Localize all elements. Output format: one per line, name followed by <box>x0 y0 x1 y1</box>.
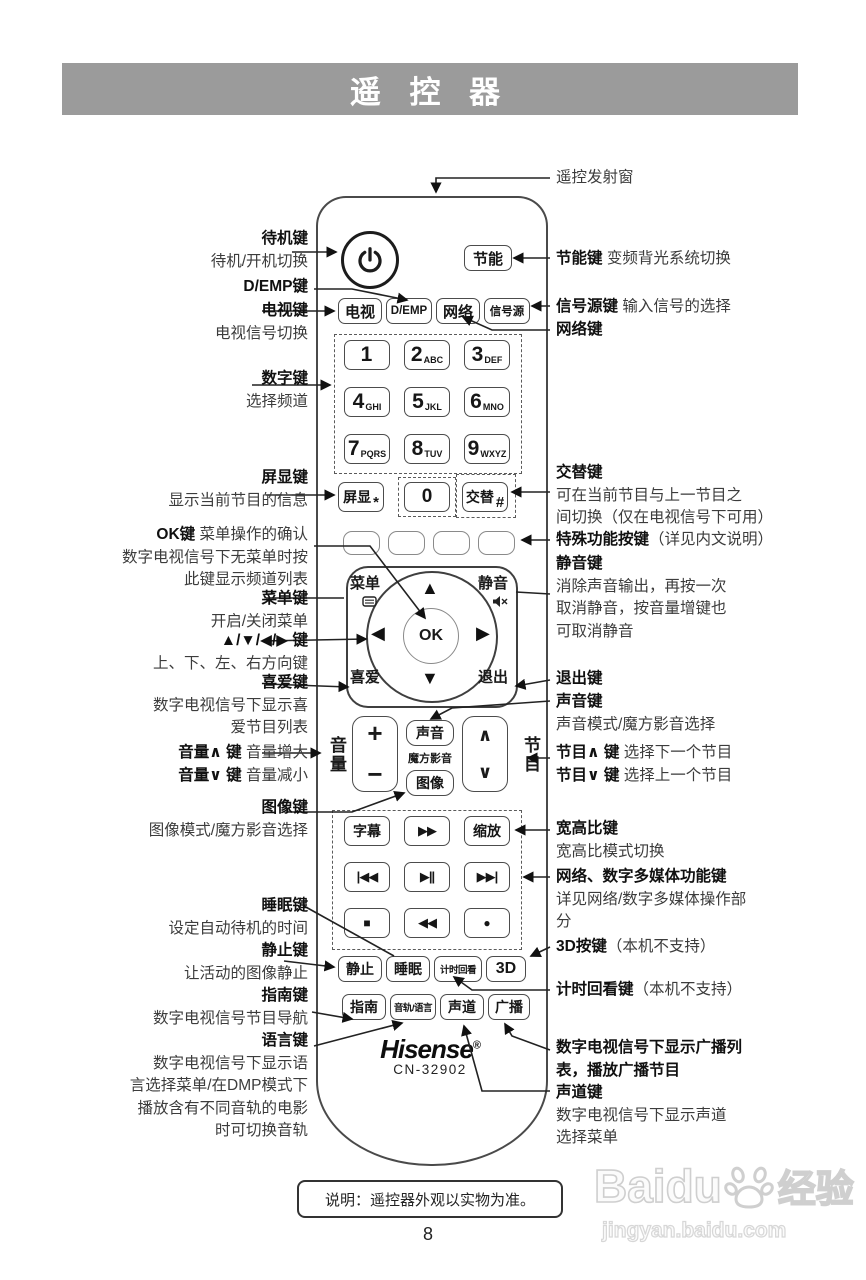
callout-desc: 时可切换音轨 <box>130 1120 308 1143</box>
next-button: ▶▶| <box>464 862 510 892</box>
power-icon <box>355 245 385 275</box>
callout-language: 语言键 数字电视信号下显示语 言选择菜单/在DMP模式下 播放含有不同音轨的电影… <box>130 1030 308 1143</box>
callout-key-name: ▲/▼/◀/▶ 键 <box>153 630 308 653</box>
callout-desc: 电视信号切换 <box>215 323 308 346</box>
key-7: 7PQRS <box>344 434 390 464</box>
model-number: CN-32902 <box>316 1062 544 1077</box>
callout-line: 特殊功能按键（详见内文说明） <box>556 529 773 552</box>
callout-key-name: 喜爱键 <box>153 672 308 695</box>
digit-letters: WXYZ <box>480 449 506 459</box>
callout-key-name: 节目∧ 键 <box>556 744 619 761</box>
callout-line: 3D按键（本机不支持） <box>556 936 715 959</box>
key-4: 4GHI <box>344 387 390 417</box>
callout-ok: OK键 菜单操作的确认 数字电视信号下无菜单时按 此键显示频道列表 <box>122 524 308 592</box>
callout-key-name: 节目∨ 键 <box>556 767 619 784</box>
cube-av-label: 魔方影音 <box>400 750 460 766</box>
watermark-logo: Baidu 经验 <box>594 1158 864 1213</box>
3d-button: 3D <box>486 956 526 982</box>
manual-page: 遥 控 器 <box>0 0 866 1280</box>
callout-menu: 菜单键 开启/关闭菜单 <box>211 588 308 633</box>
callout-line: 信号源键 输入信号的选择 <box>556 296 731 319</box>
callout-desc: 间切换（仅在电视信号下可用） <box>556 507 773 530</box>
callout-desc: 分 <box>556 911 746 934</box>
digit-letters: TUV <box>424 449 442 459</box>
source-button: 信号源 <box>484 298 530 324</box>
callout-key-name: 声道键 <box>556 1082 727 1105</box>
callout-desc: 言选择菜单/在DMP模式下 <box>130 1075 308 1098</box>
callout-key-name: 退出键 <box>556 668 603 691</box>
callout-desc: 变频背光系统切换 <box>603 250 731 267</box>
callout-tv: 电视键 电视信号切换 <box>215 300 308 345</box>
callout-key-name: 待机键 <box>211 228 308 251</box>
zoom-button: 缩放 <box>464 816 510 846</box>
program-up-key: ∧ <box>478 725 493 746</box>
callout-source: 信号源键 输入信号的选择 <box>556 296 731 319</box>
picture-button: 图像 <box>406 770 454 796</box>
digit: 5 <box>412 390 424 414</box>
note-box: 说明：遥控器外观以实物为准。 <box>297 1180 563 1218</box>
callout-key-name: 网络键 <box>556 319 603 342</box>
callout-desc: 选择下一个节目 <box>619 744 732 761</box>
callout-desc: 输入信号的选择 <box>618 298 731 315</box>
watermark-brand-text: Baidu <box>594 1159 722 1213</box>
callout-desc: （详见内文说明） <box>649 531 773 548</box>
callout-key-name: 音量∨ 键 <box>178 767 241 784</box>
callout-desc: 图像模式/魔方影音选择 <box>149 820 308 843</box>
callout-key-name: 数字电视信号下显示广播列 <box>556 1037 742 1060</box>
brand-name: Hisense <box>380 1034 473 1064</box>
network-button: 网络 <box>436 298 480 324</box>
sleep-button: 睡眠 <box>386 956 430 982</box>
callout-picture: 图像键 图像模式/魔方影音选择 <box>149 797 308 842</box>
key-1: 1 <box>344 340 390 370</box>
key-3: 3DEF <box>464 340 510 370</box>
callout-network: 网络键 <box>556 319 603 342</box>
digit-letters: JKL <box>425 402 442 412</box>
callout-program: 节目∧ 键 选择下一个节目 节目∨ 键 选择上一个节目 <box>556 742 732 787</box>
guide-button: 指南 <box>342 994 386 1020</box>
callout-desc: 详见网络/数字多媒体操作部 <box>556 889 746 912</box>
digit: 6 <box>470 390 482 414</box>
callout-key-name: 网络、数字多媒体功能键 <box>556 866 746 889</box>
callout-key-name: OK键 <box>156 526 195 543</box>
menu-icon <box>362 596 377 607</box>
callout-desc: 选择上一个节目 <box>619 767 732 784</box>
callout-desc: 消除声音输出，再按一次 <box>556 576 727 599</box>
callout-key-name: 计时回看键 <box>556 981 634 998</box>
callout-eco: 节能键 变频背光系统切换 <box>556 248 731 271</box>
callout-key-name: 特殊功能按键 <box>556 531 649 548</box>
callout-special-function: 特殊功能按键（详见内文说明） <box>556 529 773 552</box>
callout-key-name: 声音键 <box>556 691 715 714</box>
callout-demp: D/EMP键 <box>243 276 308 299</box>
callout-line: 节目∧ 键 选择下一个节目 <box>556 742 732 765</box>
callout-channel-sound: 声道键 数字电视信号下显示声道 选择菜单 <box>556 1082 727 1150</box>
key-8: 8TUV <box>404 434 450 464</box>
callout-desc: 选择频道 <box>246 391 308 414</box>
callout-desc: 数字电视信号下显示喜 <box>153 695 308 718</box>
callout-timeshift: 计时回看键（本机不支持） <box>556 979 742 1002</box>
callout-key-name: 音量∧ 键 <box>178 744 241 761</box>
callout-desc: 设定自动待机的时间 <box>168 918 308 941</box>
digit: 7 <box>348 437 360 461</box>
down-arrow-button: ▼ <box>421 668 439 689</box>
callout-desc: 数字电视信号下显示语 <box>130 1053 308 1076</box>
hisense-logo: Hisense® <box>316 1034 544 1065</box>
callout-desc: 声音模式/魔方影音选择 <box>556 714 715 737</box>
screen-display-button: 屏显* <box>338 482 384 512</box>
exit-button: 退出 <box>478 666 508 687</box>
special-function-button-3 <box>433 531 470 555</box>
callout-line: 节目∨ 键 选择上一个节目 <box>556 765 732 788</box>
callout-key-name: 数字键 <box>246 368 308 391</box>
callout-desc: 让活动的图像静止 <box>184 963 308 986</box>
page-number: 8 <box>297 1224 559 1245</box>
power-button <box>341 231 399 289</box>
previous-button: |◀◀ <box>344 862 390 892</box>
paw-icon <box>724 1161 774 1211</box>
left-arrow-button: ◀ <box>371 623 385 644</box>
callout-arrows: ▲/▼/◀/▶ 键 上、下、左、右方向键 <box>153 630 308 675</box>
callout-line: 音量∧ 键 音量增大 <box>178 742 308 765</box>
callout-volume: 音量∧ 键 音量增大 音量∨ 键 音量减小 <box>178 742 308 787</box>
volume-label: 音量 <box>324 736 349 774</box>
callout-ir-window: 遥控发射窗 <box>556 167 634 190</box>
callout-sleep: 睡眠键 设定自动待机的时间 <box>168 895 308 940</box>
tv-button: 电视 <box>338 298 382 324</box>
key-0: 0 <box>404 482 450 512</box>
timeshift-button: 计时回看 <box>434 956 482 982</box>
callout-desc: 宽高比模式切换 <box>556 841 665 864</box>
callout-desc: 可取消静音 <box>556 621 727 644</box>
key-9: 9WXYZ <box>464 434 510 464</box>
alternate-button: 交替# <box>462 482 508 512</box>
up-arrow-button: ▲ <box>421 578 439 599</box>
callout-exit: 退出键 <box>556 668 603 691</box>
callout-guide: 指南键 数字电视信号节目导航 <box>153 985 308 1030</box>
watermark-url: jingyan.baidu.com <box>602 1219 864 1243</box>
hash: # <box>496 494 504 511</box>
watermark-suffix-text: 经验 <box>778 1158 854 1213</box>
special-function-button-2 <box>388 531 425 555</box>
callout-desc: 播放含有不同音轨的电影 <box>130 1098 308 1121</box>
callout-alternate: 交替键 可在当前节目与上一节目之 间切换（仅在电视信号下可用） <box>556 462 773 530</box>
callout-key-name: 交替键 <box>556 462 773 485</box>
mute-button: 静音 <box>478 572 508 593</box>
callout-line: OK键 菜单操作的确认 <box>122 524 308 547</box>
digit-letters: MNO <box>483 402 504 412</box>
callout-desc: 取消静音，按音量增键也 <box>556 598 727 621</box>
special-function-button-1 <box>343 531 380 555</box>
callout-broadcast: 数字电视信号下显示广播列 表，播放广播节目 <box>556 1037 742 1082</box>
callout-desc: 遥控发射窗 <box>556 167 634 190</box>
special-function-button-4 <box>478 531 515 555</box>
play-pause-button: ▶|| <box>404 862 450 892</box>
callout-desc: 数字电视信号下无菜单时按 <box>122 547 308 570</box>
callout-line: 音量∨ 键 音量减小 <box>178 765 308 788</box>
callout-key-name: 表，播放广播节目 <box>556 1060 742 1083</box>
eco-button: 节能 <box>464 245 512 271</box>
volume-down-key: − <box>367 759 382 790</box>
callout-desc: （本机不支持） <box>607 938 716 955</box>
digit: 9 <box>468 437 480 461</box>
callout-desc: 显示当前节目的信息 <box>168 490 308 513</box>
callout-key-name: 宽高比键 <box>556 818 665 841</box>
subtitle-button: 字幕 <box>344 816 390 846</box>
callout-key-name: 电视键 <box>215 300 308 323</box>
callout-3d: 3D按键（本机不支持） <box>556 936 715 959</box>
callout-screen-display: 屏显键 显示当前节目的信息 <box>168 467 308 512</box>
screen-display-label: 屏显 <box>343 487 371 507</box>
watermark: Baidu 经验 jingyan.baidu.com <box>594 1158 864 1243</box>
demp-button: D/EMP <box>386 298 432 324</box>
program-rocker: ∧ ∨ <box>462 716 508 792</box>
key-5: 5JKL <box>404 387 450 417</box>
digit: 1 <box>361 343 373 367</box>
callout-desc: 爱节目列表 <box>153 717 308 740</box>
digit: 8 <box>412 437 424 461</box>
callout-desc: （本机不支持） <box>634 981 743 998</box>
digit-letters: ABC <box>424 355 444 365</box>
stop-button: ■ <box>344 908 390 938</box>
callout-key-name: 3D按键 <box>556 938 607 955</box>
key-2: 2ABC <box>404 340 450 370</box>
digit: 4 <box>353 390 365 414</box>
digit-letters: DEF <box>484 355 502 365</box>
callout-key-name: 语言键 <box>130 1030 308 1053</box>
digit: 3 <box>472 343 484 367</box>
callout-mute: 静音键 消除声音输出，再按一次 取消静音，按音量增键也 可取消静音 <box>556 553 727 643</box>
callout-key-name: 菜单键 <box>211 588 308 611</box>
fast-forward-button: ▶▶ <box>404 816 450 846</box>
callout-key-name: 信号源键 <box>556 298 618 315</box>
callout-sound: 声音键 声音模式/魔方影音选择 <box>556 691 715 736</box>
digit: 2 <box>411 343 423 367</box>
callout-key-name: 静音键 <box>556 553 727 576</box>
callout-desc: 音量增大 <box>242 744 308 761</box>
callout-line: 计时回看键（本机不支持） <box>556 979 742 1002</box>
callout-desc: 数字电视信号节目导航 <box>153 1008 308 1031</box>
broadcast-button: 广播 <box>488 994 530 1020</box>
freeze-button: 静止 <box>338 956 382 982</box>
rewind-button: ◀◀ <box>404 908 450 938</box>
program-label: 节目 <box>518 736 543 774</box>
callout-key-name: 指南键 <box>153 985 308 1008</box>
callout-freeze: 静止键 让活动的图像静止 <box>184 940 308 985</box>
program-down-key: ∨ <box>478 762 493 783</box>
registered-mark: ® <box>473 1039 480 1051</box>
alternate-label: 交替 <box>466 487 494 507</box>
favorite-button: 喜爱 <box>350 666 380 687</box>
volume-up-key: + <box>367 718 382 749</box>
menu-button: 菜单 <box>350 572 380 593</box>
callout-desc: 菜单操作的确认 <box>195 526 308 543</box>
page-title: 遥 控 器 <box>62 63 798 115</box>
callout-multimedia: 网络、数字多媒体功能键 详见网络/数字多媒体操作部 分 <box>556 866 746 934</box>
right-arrow-button: ▶ <box>476 623 490 644</box>
sound-button: 声音 <box>406 720 454 746</box>
asterisk: * <box>373 494 379 511</box>
callout-aspect-ratio: 宽高比键 宽高比模式切换 <box>556 818 665 863</box>
callout-key-name: 节能键 <box>556 250 603 267</box>
ok-button: OK <box>403 608 459 664</box>
callout-desc: 选择菜单 <box>556 1127 727 1150</box>
callout-digits: 数字键 选择频道 <box>246 368 308 413</box>
callout-desc: 待机/开机切换 <box>211 251 308 274</box>
callout-desc: 可在当前节目与上一节目之 <box>556 485 773 508</box>
channel-sound-button: 声道 <box>440 994 484 1020</box>
callout-favorite: 喜爱键 数字电视信号下显示喜 爱节目列表 <box>153 672 308 740</box>
callout-key-name: D/EMP键 <box>243 276 308 299</box>
callout-key-name: 睡眠键 <box>168 895 308 918</box>
volume-rocker: + − <box>352 716 398 792</box>
callout-desc: 音量减小 <box>242 767 308 784</box>
callout-standby: 待机键 待机/开机切换 <box>211 228 308 273</box>
record-button: ● <box>464 908 510 938</box>
mute-icon <box>492 595 508 608</box>
digit-letters: PQRS <box>361 449 387 459</box>
callout-key-name: 静止键 <box>184 940 308 963</box>
callout-desc: 数字电视信号下显示声道 <box>556 1105 727 1128</box>
digit-letters: GHI <box>365 402 381 412</box>
callout-key-name: 屏显键 <box>168 467 308 490</box>
callout-line: 节能键 变频背光系统切换 <box>556 248 731 271</box>
key-6: 6MNO <box>464 387 510 417</box>
callout-key-name: 图像键 <box>149 797 308 820</box>
audio-language-button: 音轨/语言 <box>390 994 436 1020</box>
